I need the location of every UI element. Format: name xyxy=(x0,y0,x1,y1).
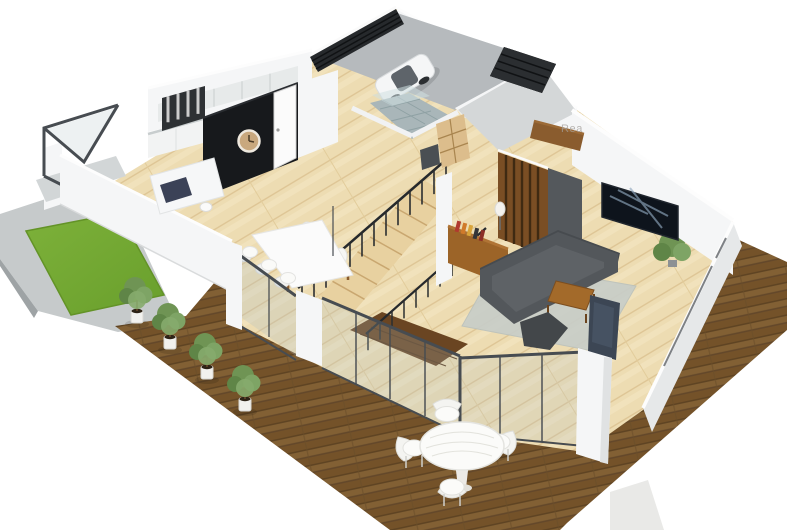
glass-pillar-mid xyxy=(296,290,322,366)
floorplan-3d-view[interactable]: Rea xyxy=(0,0,787,530)
house xyxy=(36,7,742,464)
plant-pot xyxy=(668,260,677,267)
floorplan-canvas[interactable]: Rea xyxy=(0,0,787,530)
stool xyxy=(200,203,212,212)
deck-step xyxy=(610,480,664,530)
wall-clock xyxy=(239,131,260,152)
glass-pillar-left xyxy=(226,240,242,330)
interior-door xyxy=(274,85,296,169)
door-knob xyxy=(276,128,279,131)
outdoor-chair xyxy=(433,399,461,422)
armchair xyxy=(588,295,620,360)
watermark-text: Rea xyxy=(561,123,583,135)
